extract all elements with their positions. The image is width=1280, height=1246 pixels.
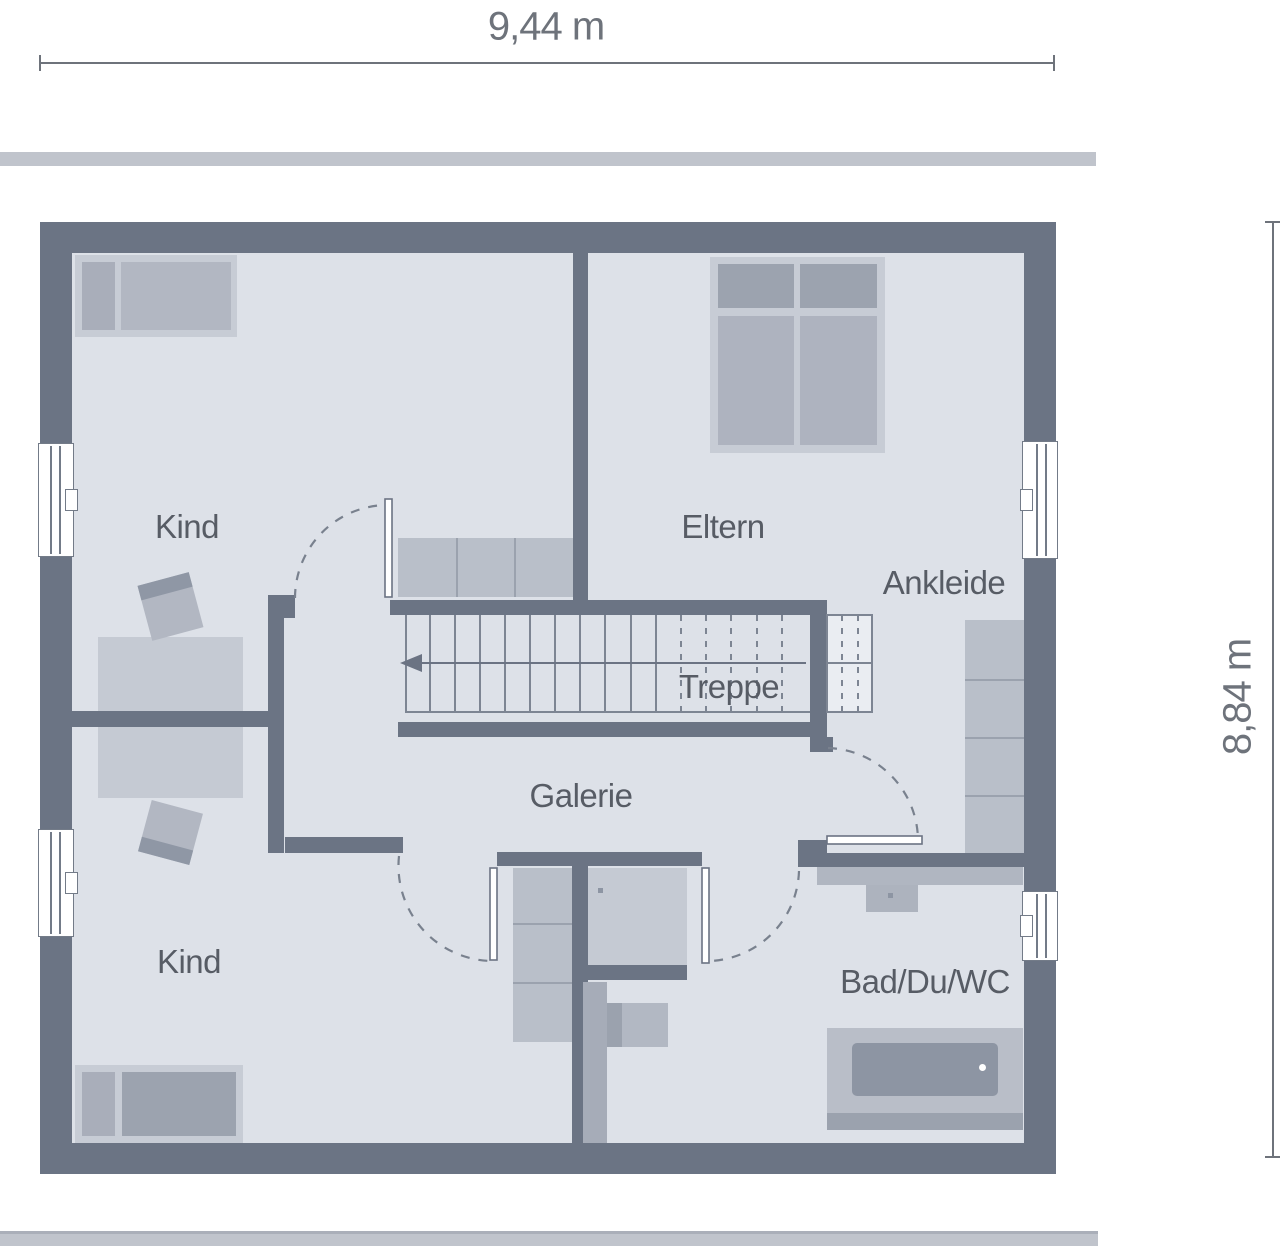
door-leaves bbox=[385, 499, 922, 963]
room-label-kind-upper: Kind bbox=[155, 508, 219, 546]
room-label-treppe: Treppe bbox=[679, 668, 779, 706]
room-label-eltern: Eltern bbox=[681, 508, 764, 546]
room-label-bad: Bad/Du/WC bbox=[840, 963, 1010, 1001]
floor-plan: 9,44 m 8,84 m bbox=[0, 0, 1280, 1246]
stair-upper-flight bbox=[827, 615, 872, 712]
plan-linework bbox=[0, 0, 1280, 1246]
room-label-galerie: Galerie bbox=[530, 777, 633, 815]
room-label-ankleide: Ankleide bbox=[883, 564, 1006, 602]
room-label-kind-lower: Kind bbox=[157, 943, 221, 981]
